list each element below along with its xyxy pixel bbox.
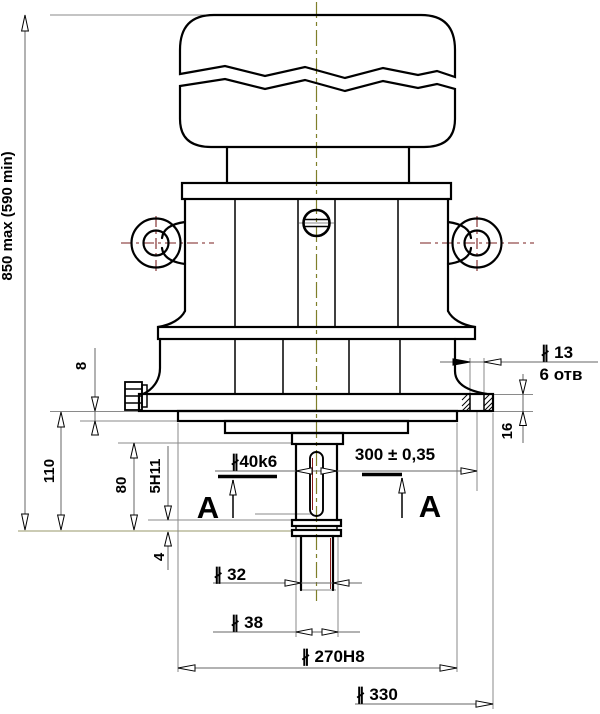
break-line (180, 79, 455, 147)
dim-80: 80 (113, 477, 130, 494)
dim-spigot-diameter: ∦ 270H8 (301, 647, 364, 667)
dim-groove-4: 4 (151, 552, 168, 561)
section-mark-a-left: A (197, 490, 219, 525)
motor-neck (227, 147, 409, 183)
dim-shaft-end-diameter: ∦ 32 (214, 565, 246, 585)
dim-keyway-5H11: 5H11 (147, 458, 164, 493)
dim-collar-diameter: ∦ 38 (231, 613, 263, 633)
drawing-canvas: 850 max (590 min) 8 110 80 5H11 4 ∦40k6 … (0, 0, 600, 714)
dim-overall-height: 850 max (590 min) (0, 151, 16, 280)
dimension-lines (25, 15, 598, 704)
engineering-drawing: 850 max (590 min) 8 110 80 5H11 4 ∦40k6 … (0, 0, 600, 714)
motor-housing-upper (180, 15, 455, 78)
dim-flange-thickness: 16 (499, 423, 516, 440)
housing-lower-section (143, 339, 487, 394)
dim-spigot-protrusion: 8 (73, 362, 90, 370)
dim-hole-count: 6 отв (540, 365, 583, 384)
dimension-arrowheads (22, 15, 527, 707)
dimension-labels: 850 max (590 min) 8 110 80 5H11 4 ∦40k6 … (0, 151, 582, 705)
flange-bolt (125, 382, 147, 410)
dim-bolt-circle: 300 ± 0,35 (355, 445, 435, 464)
flange-hole-hatching (462, 394, 493, 411)
section-mark-a-right: A (419, 489, 441, 524)
dim-flange-outer-diameter: ∦ 330 (356, 685, 398, 705)
dim-110: 110 (41, 459, 58, 483)
dim-shaft-diameter: ∦40k6 (231, 452, 277, 472)
section-cut-marks (218, 475, 405, 519)
centering-spigot (178, 411, 457, 444)
dim-hole-diameter: ∦ 13 (541, 343, 573, 363)
